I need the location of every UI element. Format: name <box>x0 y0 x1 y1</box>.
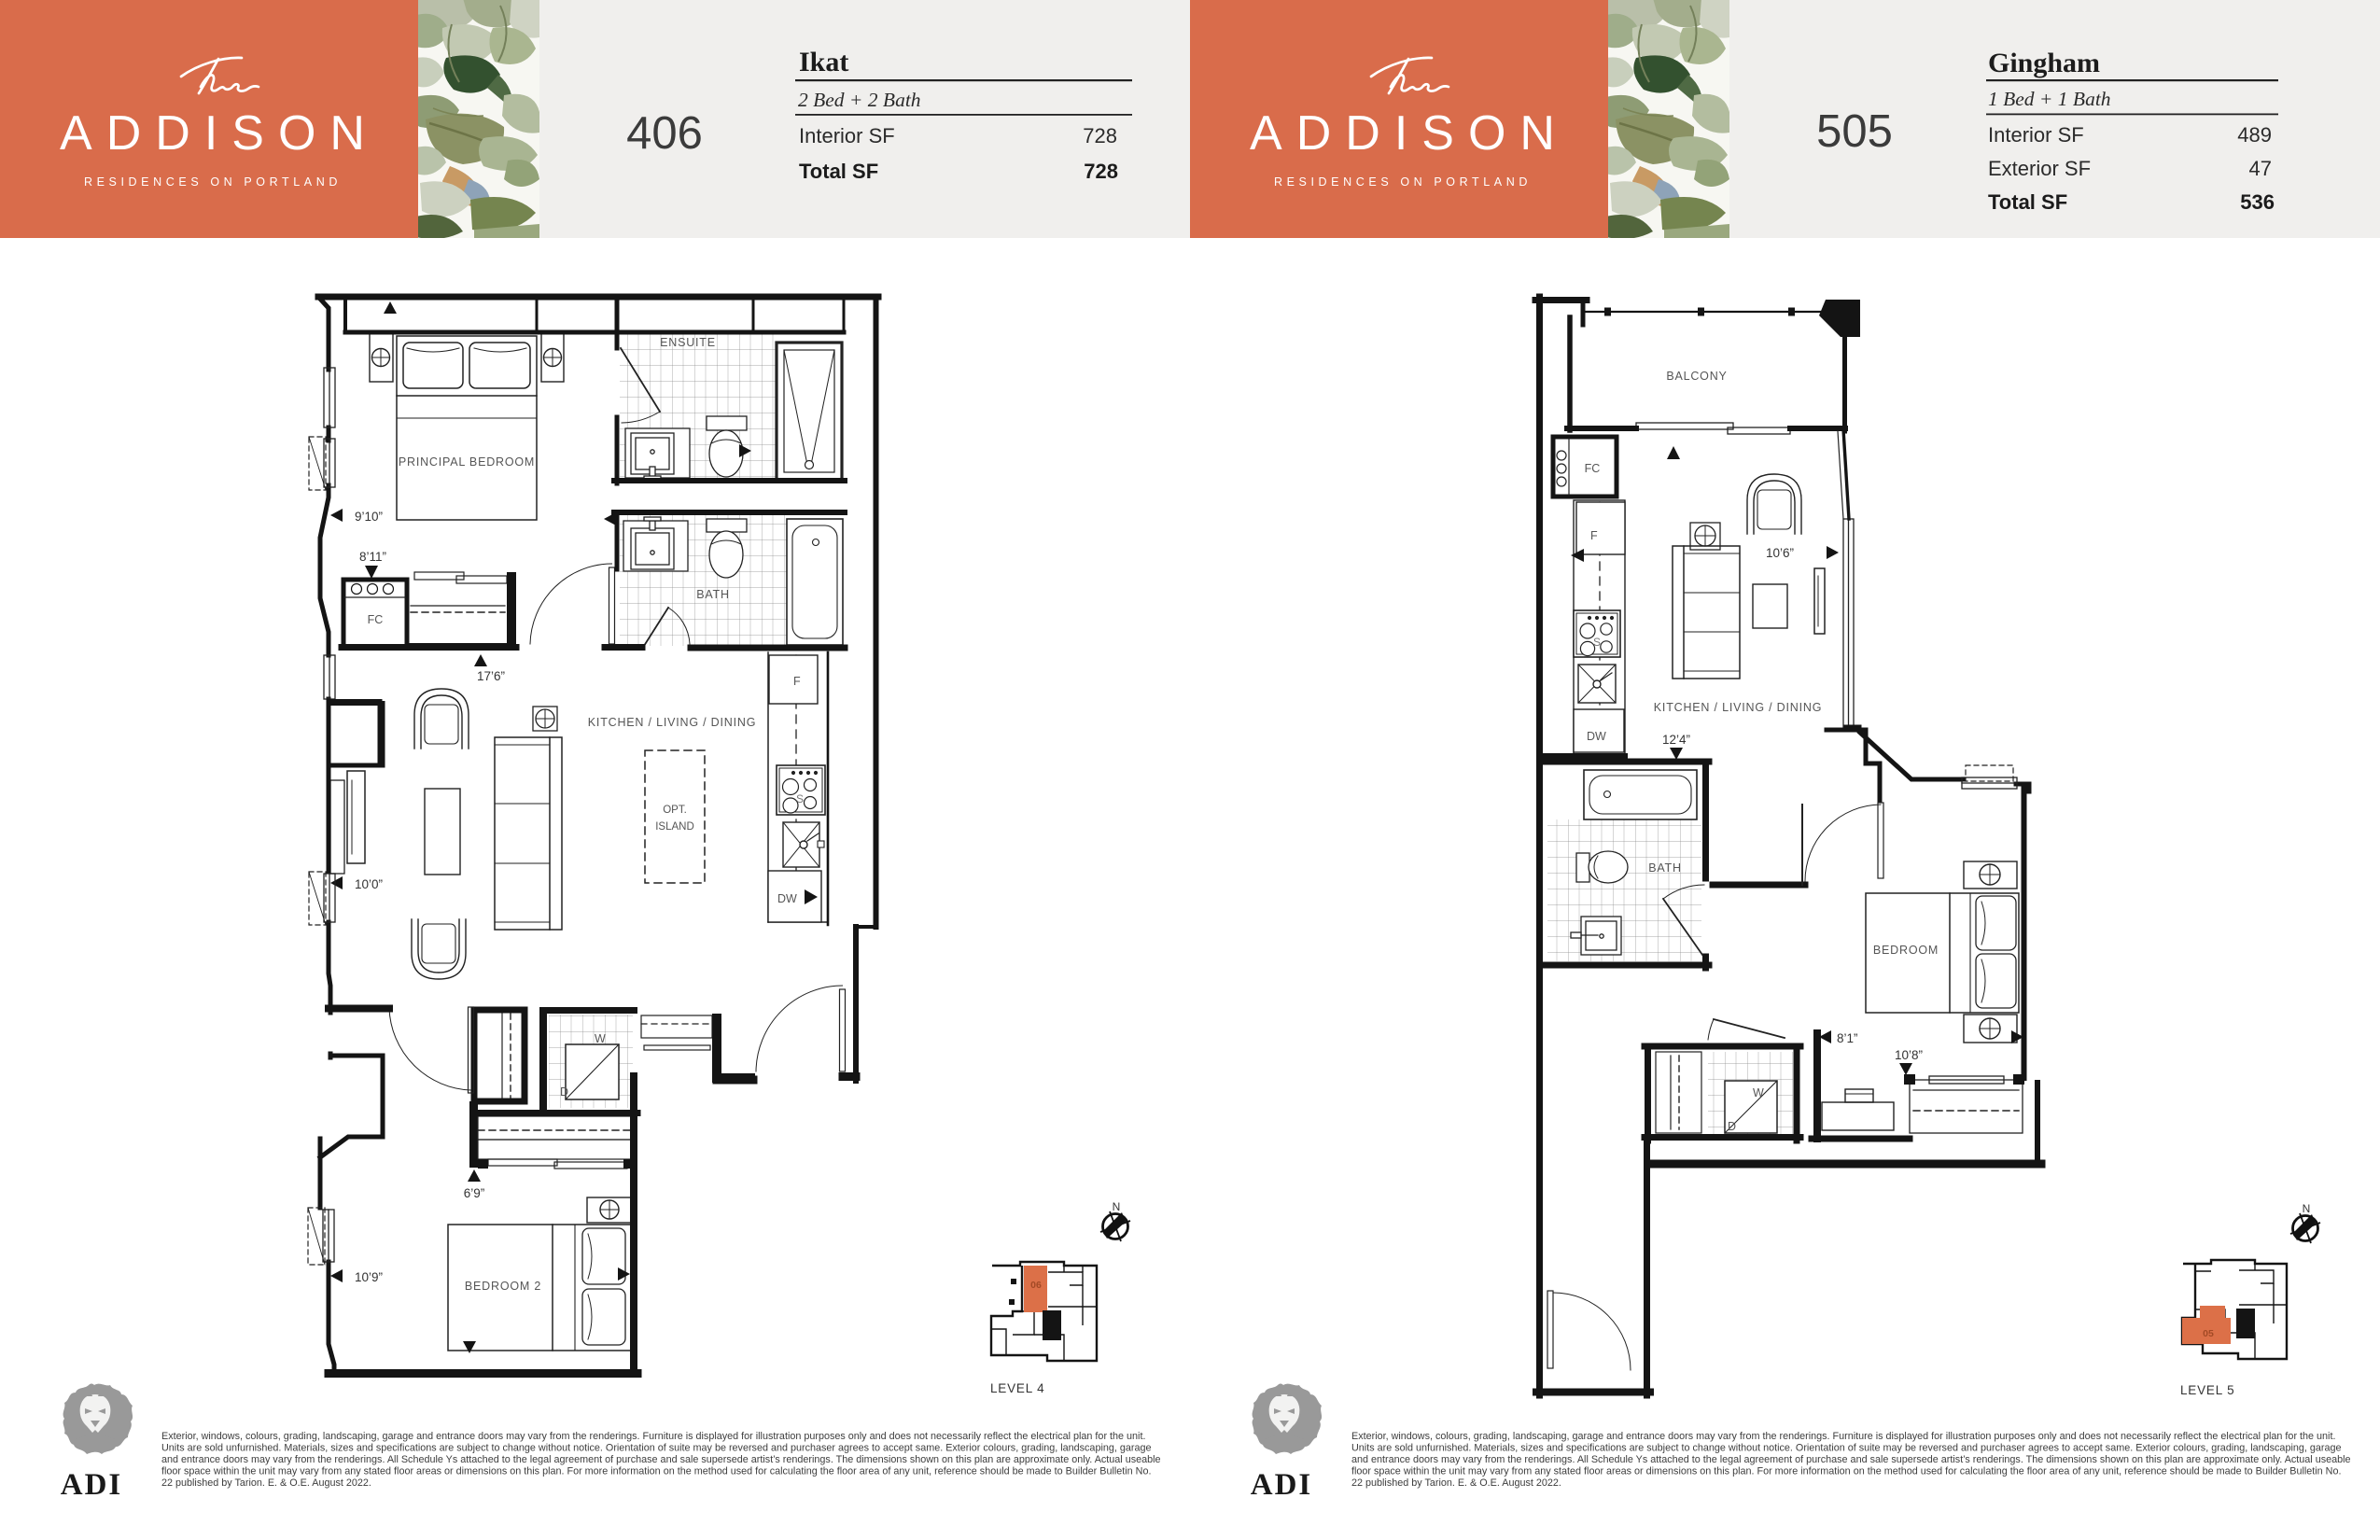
svg-text:D: D <box>560 1085 568 1099</box>
svg-text:ENSUITE: ENSUITE <box>660 336 716 349</box>
svg-text:505: 505 <box>1816 106 1893 157</box>
svg-text:Total SF: Total SF <box>799 160 878 183</box>
svg-text:05: 05 <box>2203 1328 2214 1339</box>
svg-text:536: 536 <box>2240 190 2275 214</box>
svg-text:BEDROOM 2: BEDROOM 2 <box>465 1280 541 1293</box>
svg-text:DW: DW <box>1587 730 1606 743</box>
svg-text:DW: DW <box>777 892 797 905</box>
svg-text:ISLAND: ISLAND <box>655 821 694 833</box>
svg-text:OPT.: OPT. <box>663 805 687 816</box>
svg-text:2 Bed + 2 Bath: 2 Bed + 2 Bath <box>798 89 921 111</box>
svg-text:Ikat: Ikat <box>799 47 848 77</box>
svg-text:6’9”: 6’9” <box>464 1186 485 1200</box>
svg-text:12’4”: 12’4” <box>1662 733 1690 747</box>
svg-text:ADI: ADI <box>1251 1468 1313 1502</box>
svg-text:Units are sold unfurnished. Ma: Units are sold unfurnished. Materials, s… <box>161 1443 1151 1454</box>
svg-text:ADI: ADI <box>61 1468 123 1502</box>
svg-text:22 published by Tarion. E. & O: 22 published by Tarion. E. & O.E. August… <box>1351 1477 1561 1489</box>
svg-text:728: 728 <box>1084 160 1118 183</box>
svg-text:ADDISON: ADDISON <box>1250 106 1569 161</box>
svg-text:10’6”: 10’6” <box>1766 546 1794 560</box>
svg-text:9’10”: 9’10” <box>355 510 383 524</box>
svg-text:8’1”: 8’1” <box>1837 1031 1858 1045</box>
svg-text:W: W <box>595 1032 606 1045</box>
svg-text:8’11”: 8’11” <box>359 550 386 564</box>
svg-text:Gingham: Gingham <box>1988 48 2100 78</box>
svg-text:BATH: BATH <box>696 588 730 601</box>
svg-text:Units are sold unfurnished. Ma: Units are sold unfurnished. Materials, s… <box>1351 1443 2341 1454</box>
svg-text:F: F <box>1590 529 1598 542</box>
svg-text:FC: FC <box>368 613 384 626</box>
svg-text:Exterior SF: Exterior SF <box>1988 157 2091 180</box>
svg-text:W: W <box>1753 1086 1764 1099</box>
svg-text:10’8”: 10’8” <box>1895 1048 1923 1062</box>
svg-text:406: 406 <box>626 108 703 159</box>
svg-text:17’6”: 17’6” <box>477 669 505 683</box>
svg-text:1 Bed + 1 Bath: 1 Bed + 1 Bath <box>1988 88 2111 110</box>
svg-text:floor space within the unit ma: floor space within the unit may vary fro… <box>161 1466 1151 1477</box>
svg-text:FC: FC <box>1585 462 1601 475</box>
svg-text:LEVEL 5: LEVEL 5 <box>2180 1383 2234 1397</box>
svg-text:PRINCIPAL BEDROOM: PRINCIPAL BEDROOM <box>399 455 535 469</box>
svg-text:BATH: BATH <box>1648 861 1682 875</box>
svg-text:floor space within the unit ma: floor space within the unit may vary fro… <box>1351 1466 2341 1477</box>
svg-text:10’9”: 10’9” <box>355 1270 383 1284</box>
svg-text:22 published by Tarion. E. & O: 22 published by Tarion. E. & O.E. August… <box>161 1477 371 1489</box>
svg-text:Interior SF: Interior SF <box>1988 123 2084 147</box>
svg-text:47: 47 <box>2249 157 2272 180</box>
svg-text:Exterior, windows, colours, gr: Exterior, windows, colours, grading, lan… <box>161 1431 1145 1442</box>
svg-text:F: F <box>793 675 801 688</box>
svg-text:S: S <box>796 792 804 805</box>
svg-text:S: S <box>1593 636 1601 649</box>
svg-text:489: 489 <box>2237 123 2272 147</box>
svg-text:N: N <box>1113 1200 1121 1213</box>
svg-text:N: N <box>2303 1202 2311 1215</box>
svg-text:728: 728 <box>1083 124 1117 147</box>
svg-text:and entrance doors may vary fr: and entrance doors may vary from the ren… <box>161 1454 1161 1465</box>
svg-text:KITCHEN / LIVING / DINING: KITCHEN / LIVING / DINING <box>588 716 756 729</box>
svg-text:06: 06 <box>1030 1280 1042 1291</box>
svg-text:10’0”: 10’0” <box>355 877 383 891</box>
svg-text:D: D <box>1728 1120 1736 1133</box>
svg-text:LEVEL 4: LEVEL 4 <box>990 1381 1044 1395</box>
svg-text:BALCONY: BALCONY <box>1666 370 1727 383</box>
svg-text:Exterior, windows, colours, gr: Exterior, windows, colours, grading, lan… <box>1351 1431 2335 1442</box>
svg-text:Interior SF: Interior SF <box>799 124 895 147</box>
svg-text:ADDISON: ADDISON <box>60 106 379 161</box>
svg-text:BEDROOM: BEDROOM <box>1873 944 1939 957</box>
svg-text:KITCHEN / LIVING / DINING: KITCHEN / LIVING / DINING <box>1654 701 1822 714</box>
svg-text:RESIDENCES ON PORTLAND: RESIDENCES ON PORTLAND <box>84 175 342 189</box>
svg-text:and entrance doors may vary fr: and entrance doors may vary from the ren… <box>1351 1454 2351 1465</box>
svg-text:Total SF: Total SF <box>1988 190 2067 214</box>
svg-text:RESIDENCES ON PORTLAND: RESIDENCES ON PORTLAND <box>1274 175 1532 189</box>
